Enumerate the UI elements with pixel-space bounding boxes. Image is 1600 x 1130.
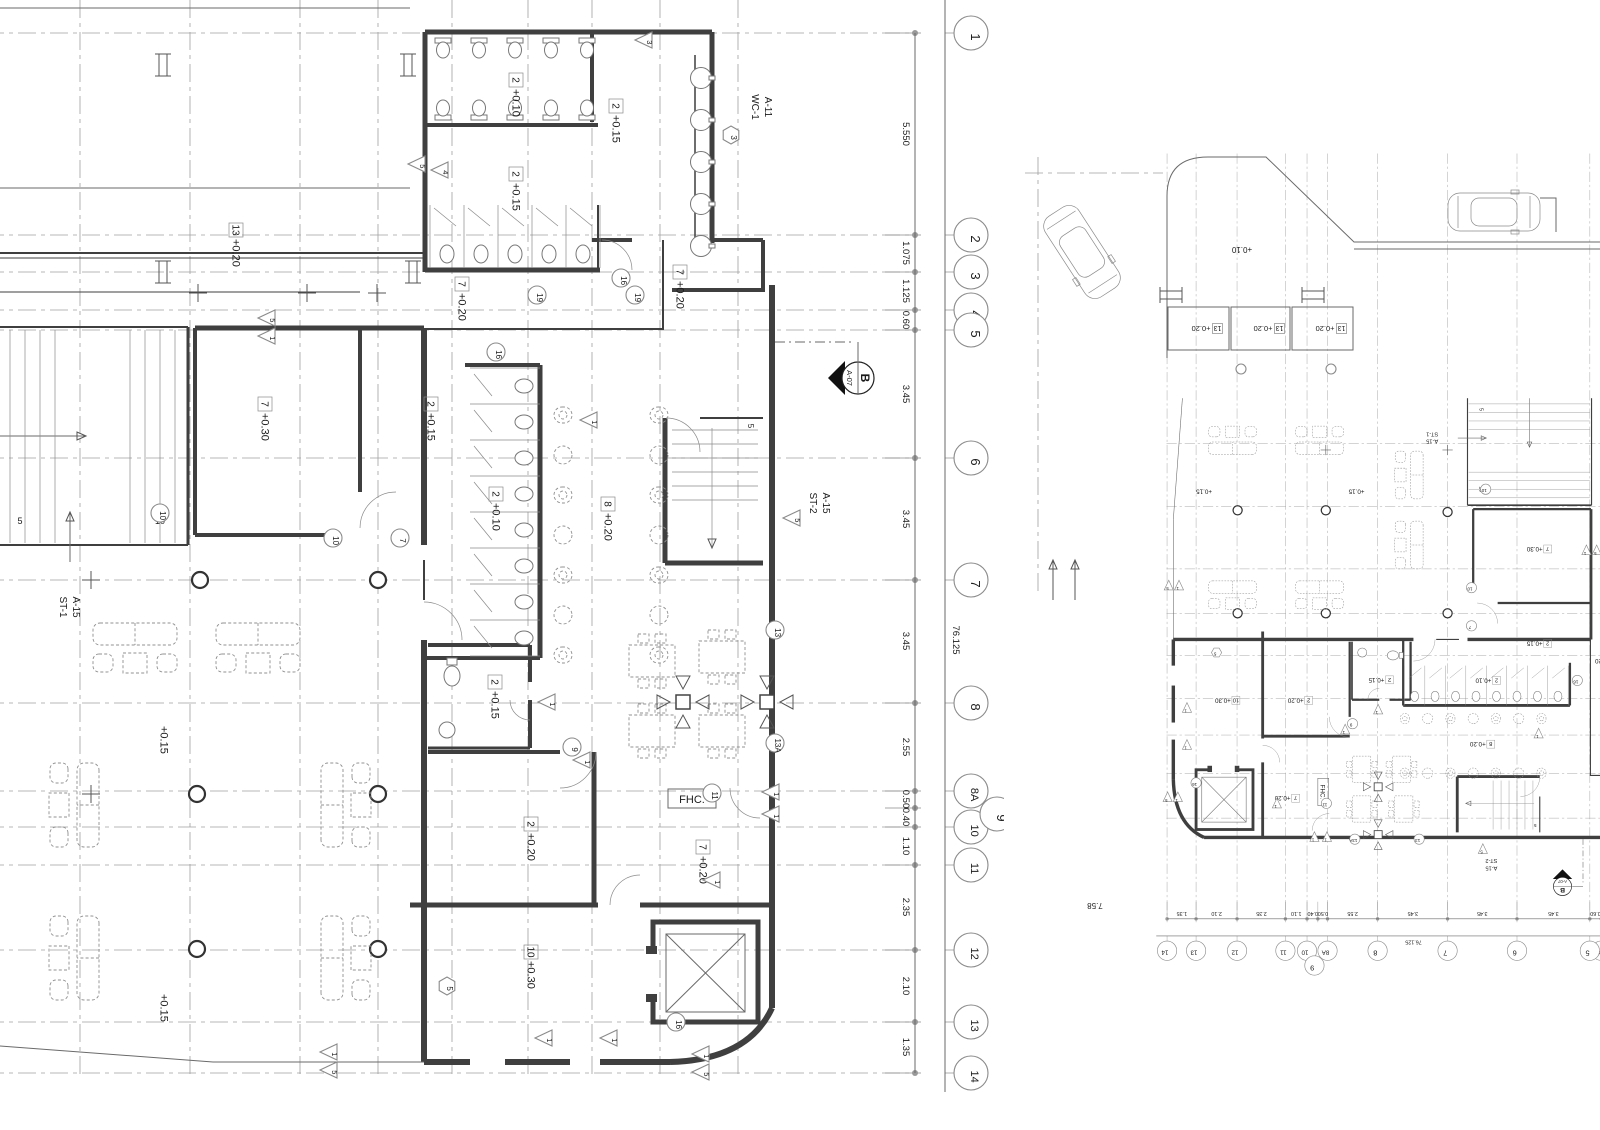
car-detail xyxy=(1047,211,1076,230)
floor-plan-canvas: 51052+0.102+0.152+0.157+0.207+0.2013+0.2… xyxy=(0,0,1600,1130)
level-label-value: +0.20 xyxy=(1254,324,1273,333)
left-plan-instance xyxy=(0,0,1014,1092)
planter-label: 13+0.20 xyxy=(1192,324,1223,334)
site-boundary xyxy=(1167,157,1600,358)
car-mirror xyxy=(1108,255,1116,264)
left-plan-viewport xyxy=(0,0,1014,1092)
car-mirror xyxy=(1073,277,1081,286)
car-mirror xyxy=(1511,230,1519,234)
car-symbol xyxy=(1037,199,1128,305)
site-corner-mark xyxy=(1540,198,1556,232)
site-extras: 13+0.2013+0.2013+0.20+0.107.58 xyxy=(1025,157,1600,910)
steel-column xyxy=(1302,287,1324,303)
column-circle xyxy=(1326,364,1336,374)
car-body xyxy=(1448,193,1540,231)
site-level-label: +0.10 xyxy=(1231,245,1252,254)
level-label-number: 13 xyxy=(1338,324,1346,331)
column-circle xyxy=(1236,364,1246,374)
planter-label: 13+0.20 xyxy=(1316,324,1347,334)
level-label-value: +0.20 xyxy=(1192,324,1211,333)
car-body xyxy=(1039,201,1125,303)
drawing-sheet: 51052+0.102+0.152+0.157+0.207+0.2013+0.2… xyxy=(0,0,1600,1130)
level-label-number: 13 xyxy=(1214,324,1222,331)
level-label-number: 13 xyxy=(1276,324,1284,331)
car-mirror xyxy=(1511,190,1519,194)
planter-label: 13+0.20 xyxy=(1254,324,1285,334)
level-label-value: +0.20 xyxy=(1316,324,1335,333)
right-plan-instance-rotated xyxy=(1156,154,1600,976)
steel-column xyxy=(1160,287,1182,303)
right-plan-viewport: 13+0.2013+0.2013+0.20+0.107.58 xyxy=(1025,154,1600,976)
car-cabin xyxy=(1056,224,1107,281)
car-detail xyxy=(1088,275,1117,294)
car-symbol xyxy=(1448,190,1540,234)
car-cabin xyxy=(1471,198,1517,226)
site-dimension: 7.58 xyxy=(1087,901,1103,910)
